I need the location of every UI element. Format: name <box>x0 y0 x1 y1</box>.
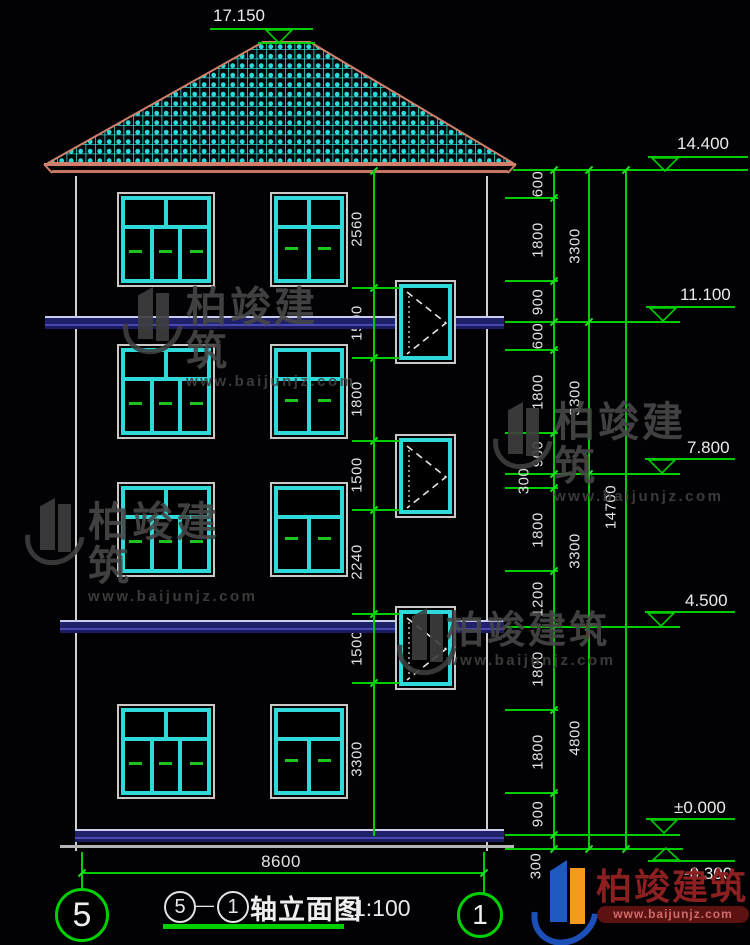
grid-bubble-label: 5 <box>73 896 92 935</box>
window-large-1f <box>117 704 215 799</box>
dim-label: 900 <box>530 289 547 316</box>
casement-opening-symbol <box>403 288 450 358</box>
logo-text: 柏竣建筑 <box>596 858 748 910</box>
dim-ext <box>352 440 400 442</box>
dim-ext <box>513 169 748 171</box>
elevation-label: 14.400 <box>677 134 729 154</box>
dim-label: 4800 <box>567 720 584 755</box>
dim-label: 600 <box>530 323 547 350</box>
window-large-4f <box>117 192 215 287</box>
watermark-url: www.baijunjz.com <box>186 373 355 390</box>
dim-label: 300 <box>516 468 533 495</box>
grid-bubble-left: 5 <box>55 888 109 942</box>
window-stair-top <box>395 280 456 364</box>
logo-building-icon <box>550 860 567 922</box>
logo-url: www.baijunjz.com <box>597 906 749 923</box>
title-separator: — <box>196 895 214 916</box>
drawing-scale: 1:100 <box>353 895 411 922</box>
floor-slab-ground <box>75 829 504 842</box>
watermark-text: 柏竣建筑 <box>186 285 355 373</box>
watermark-text: 柏竣建筑 <box>446 608 615 652</box>
peak-elevation-label: 17.150 <box>213 6 265 26</box>
dim-label: 1500 <box>349 457 366 492</box>
dim-label: 900 <box>530 801 547 828</box>
elevation-label: ±0.000 <box>674 798 726 818</box>
company-logo: 柏竣建筑 www.baijunjz.com <box>528 852 750 944</box>
title-underline <box>163 924 344 929</box>
dim-label: 3300 <box>567 533 584 568</box>
hipped-roof <box>38 30 522 182</box>
casement-opening-symbol <box>403 442 450 512</box>
title-axis-start: 5 <box>164 891 196 923</box>
drawing-title: 轴立面图 <box>250 888 362 927</box>
watermark-text: 柏竣建筑 <box>88 500 257 588</box>
dim-label: 1800 <box>530 512 547 547</box>
window-stair-mid <box>395 434 456 518</box>
window-medium-2f <box>270 482 348 577</box>
logo-building-icon <box>570 868 585 924</box>
dim-ext <box>505 834 680 836</box>
title-axis-end: 1 <box>217 891 249 923</box>
plinth-line <box>60 845 514 848</box>
peak-marker-line <box>210 28 313 30</box>
elevation-drawing: 17.150 <box>0 0 750 945</box>
roof-tiles <box>48 42 513 163</box>
dim-label: 3300 <box>567 228 584 263</box>
grid-bubble-label: 1 <box>472 899 488 931</box>
dim-line <box>373 170 375 836</box>
watermark-logo-icon <box>122 283 182 349</box>
dim-ext <box>352 287 400 289</box>
dim-line <box>625 170 627 850</box>
elev-triangle <box>650 819 678 834</box>
watermark-logo-icon <box>492 398 552 464</box>
watermark-logo-icon <box>24 494 84 560</box>
roof-fascia-top <box>44 163 516 166</box>
elev-triangle <box>651 157 679 172</box>
elevation-label: 4.500 <box>685 591 728 611</box>
dim-ext <box>352 682 400 684</box>
dim-label: 600 <box>530 171 547 198</box>
watermark-text: 柏竣建筑 <box>554 400 723 488</box>
roof-fascia-bottom <box>52 170 508 173</box>
dim-label: 1800 <box>530 222 547 257</box>
dim-line <box>588 170 590 850</box>
dim-ext <box>352 357 400 359</box>
dim-label: 1800 <box>530 734 547 769</box>
title-axis-start-label: 5 <box>174 896 185 919</box>
title-axis-end-label: 1 <box>227 896 238 919</box>
elev-triangle <box>647 612 675 627</box>
watermark-url: www.baijunjz.com <box>446 652 615 669</box>
window-medium-4f <box>270 192 348 287</box>
elevation-label: 11.100 <box>680 285 731 305</box>
dim-label: 2560 <box>349 211 366 246</box>
watermark-logo-icon <box>396 604 452 668</box>
elev-triangle <box>649 307 677 322</box>
dim-line <box>81 872 485 874</box>
watermark-url: www.baijunjz.com <box>88 588 257 605</box>
dim-ext <box>352 509 400 511</box>
window-medium-1f <box>270 704 348 799</box>
dim-label: 8600 <box>261 852 301 872</box>
ridge-cap-line <box>258 42 315 44</box>
grid-bubble-right: 1 <box>457 892 503 938</box>
dim-line <box>553 170 555 850</box>
dim-label: 1500 <box>349 630 366 665</box>
dim-ext <box>352 613 400 615</box>
dim-label: 3300 <box>349 741 366 776</box>
dim-label: 2240 <box>349 544 366 579</box>
watermark-url: www.baijunjz.com <box>554 488 723 505</box>
wall-right-edge <box>486 176 488 851</box>
